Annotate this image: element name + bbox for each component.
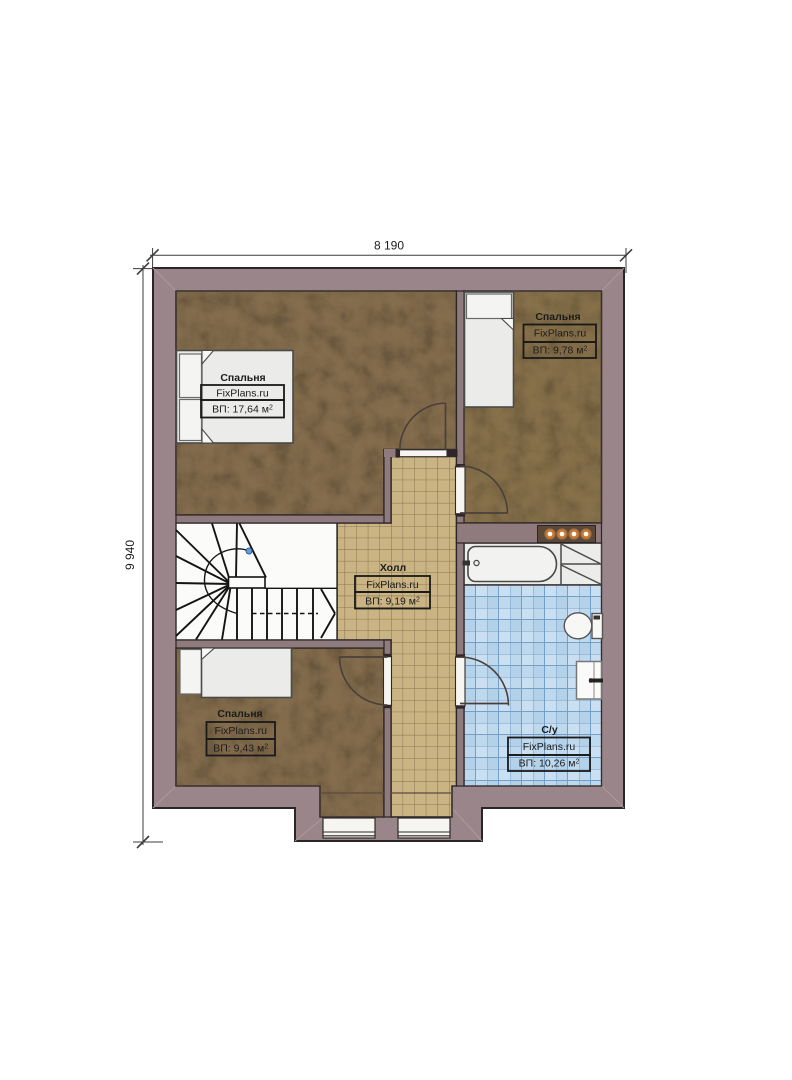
svg-text:Спальня: Спальня bbox=[217, 708, 262, 720]
svg-text:ВП: 10,26 м2: ВП: 10,26 м2 bbox=[519, 758, 580, 770]
svg-text:ВП: 9,78 м2: ВП: 9,78 м2 bbox=[533, 345, 588, 357]
svg-text:Холл: Холл bbox=[380, 562, 406, 574]
svg-text:9 940: 9 940 bbox=[123, 540, 137, 570]
svg-text:FixPlans.ru: FixPlans.ru bbox=[534, 328, 587, 340]
svg-text:8 190: 8 190 bbox=[374, 239, 404, 253]
svg-text:FixPlans.ru: FixPlans.ru bbox=[523, 741, 576, 753]
svg-text:ВП: 9,43 м2: ВП: 9,43 м2 bbox=[213, 743, 268, 755]
svg-text:ВП: 17,64 м2: ВП: 17,64 м2 bbox=[212, 404, 273, 416]
svg-text:Спальня: Спальня bbox=[220, 372, 265, 384]
svg-text:Спальня: Спальня bbox=[535, 311, 580, 323]
svg-text:FixPlans.ru: FixPlans.ru bbox=[214, 725, 267, 737]
svg-text:FixPlans.ru: FixPlans.ru bbox=[216, 388, 269, 400]
svg-text:ВП: 9,19 м2: ВП: 9,19 м2 bbox=[365, 596, 420, 608]
svg-text:С/у: С/у bbox=[541, 724, 558, 736]
svg-text:FixPlans.ru: FixPlans.ru bbox=[366, 579, 419, 591]
